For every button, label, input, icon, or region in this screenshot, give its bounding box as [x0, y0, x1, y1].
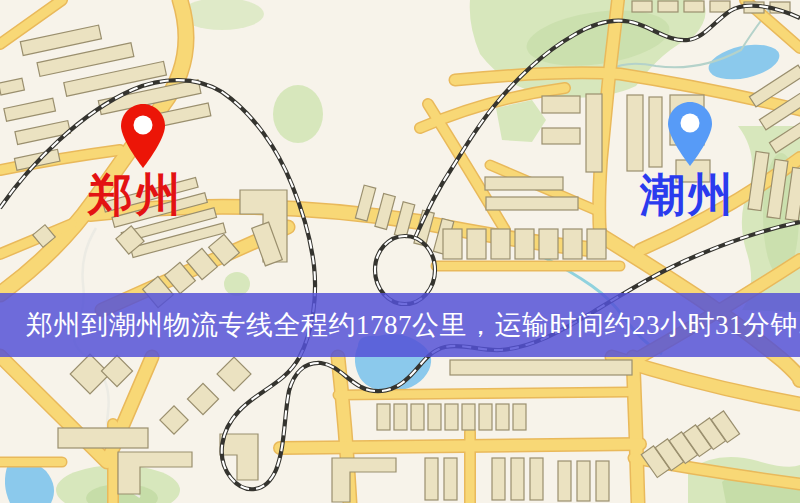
origin-label: 郑州	[88, 173, 184, 218]
route-info-banner: 郑州到潮州物流专线全程约1787公里，运输时间约23小时31分钟.	[0, 293, 800, 357]
destination-label: 潮州	[640, 173, 736, 218]
map-canvas[interactable]	[0, 0, 800, 503]
map-viewport[interactable]: 郑州 潮州 郑州到潮州物流专线全程约1787公里，运输时间约23小时31分钟.	[0, 0, 800, 503]
